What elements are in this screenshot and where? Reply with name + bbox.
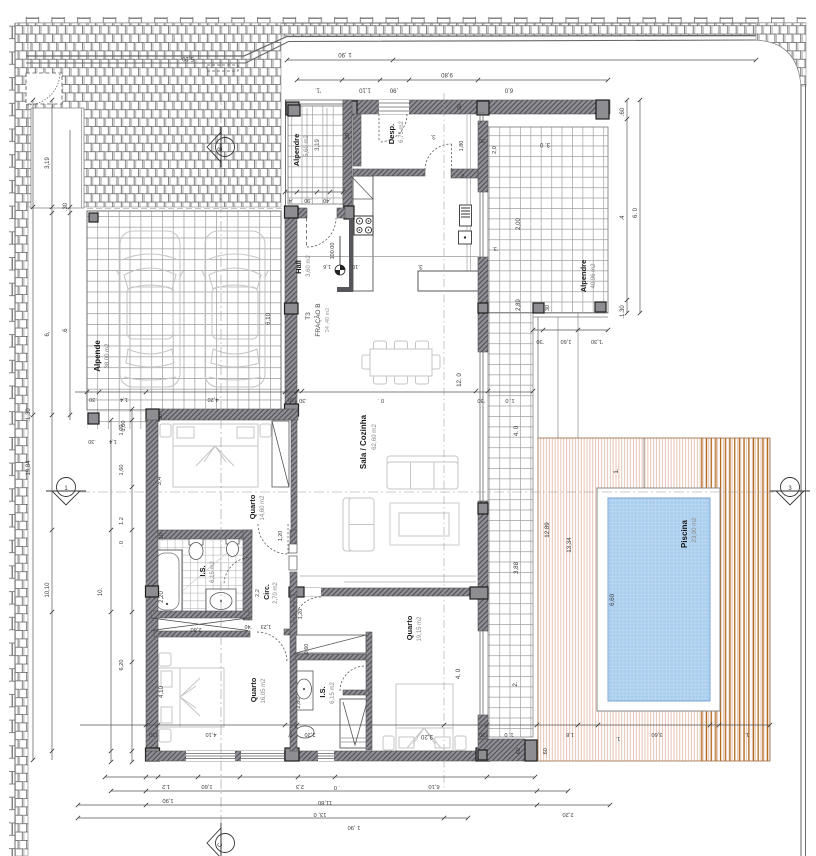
svg-text:.30: .30: [299, 397, 307, 403]
svg-text:.30: .30: [89, 396, 97, 402]
svg-text:Quarto: Quarto: [405, 615, 414, 640]
svg-text:Hall: Hall: [294, 260, 303, 274]
svg-text:4,20: 4,20: [208, 396, 219, 402]
svg-text:'3.: '3.: [492, 245, 498, 251]
svg-text:1,4: 1,4: [120, 396, 128, 402]
svg-text:5,10: 5,10: [182, 55, 194, 61]
svg-text:9,80: 9,80: [441, 71, 453, 77]
svg-text:6,: 6,: [45, 331, 51, 336]
svg-text:|30: |30: [288, 396, 296, 402]
svg-text:4,10: 4,10: [158, 685, 165, 698]
svg-text:1. 0: 1. 0: [505, 397, 514, 403]
svg-text:.10: .10: [352, 263, 360, 269]
svg-text:T3: T3: [305, 312, 312, 320]
svg-text:|30: |30: [479, 731, 487, 737]
svg-text:3. 0: 3. 0: [539, 141, 550, 147]
svg-text:0,60: 0,60: [304, 644, 310, 655]
svg-text:.10: .10: [159, 533, 165, 541]
svg-text:'30: '30: [477, 397, 484, 403]
svg-text:1,00: 1,00: [121, 421, 127, 432]
svg-text:1.: 1.: [744, 731, 749, 737]
svg-text:10,10: 10,10: [45, 582, 51, 598]
svg-text:2,70 m2: 2,70 m2: [273, 582, 279, 604]
svg-text:.1,30: .1,30: [26, 408, 32, 422]
svg-text:|30: |30: [149, 731, 157, 737]
svg-text:2,80: 2,80: [191, 626, 202, 632]
svg-text:62,60 m2: 62,60 m2: [371, 424, 378, 450]
svg-text:3,88: 3,88: [513, 561, 520, 574]
svg-text:0': 0': [288, 731, 292, 737]
svg-text:1.: 1.: [613, 468, 620, 473]
svg-text:1,60: 1,60: [201, 783, 212, 789]
svg-text:,40: ,40: [323, 197, 331, 203]
svg-text:2,89: 2,89: [516, 299, 522, 311]
svg-text:1. 0: 1. 0: [504, 731, 513, 737]
svg-text:16,05 m2: 16,05 m2: [261, 678, 267, 704]
svg-text:,90: ,90: [304, 197, 312, 203]
svg-text:.30: .30: [479, 137, 486, 143]
svg-text:.6: .6: [63, 328, 69, 334]
svg-text:10.: 10.: [98, 587, 104, 596]
svg-text:.30: .30: [63, 202, 69, 211]
svg-text:Alpendre: Alpendre: [579, 260, 588, 293]
svg-text:'1.: '1.: [315, 87, 321, 93]
svg-text:C: C: [218, 842, 224, 847]
svg-text:4. 0: 4. 0: [513, 425, 520, 436]
svg-text:I.S.: I.S.: [198, 565, 207, 576]
svg-text:1 ,90: 1 ,90: [338, 51, 352, 57]
svg-text:.1.30: .1.30: [620, 305, 626, 319]
svg-text:3.: 3.: [417, 263, 422, 270]
svg-text:Alpende: Alpende: [93, 340, 102, 372]
svg-text:30: 30: [457, 104, 463, 110]
svg-text:1,8: 1,8: [566, 731, 574, 737]
svg-text:1,6: 1,6: [323, 263, 331, 269]
svg-text:'30: '30: [536, 338, 543, 344]
svg-text:2.: 2.: [512, 681, 519, 686]
svg-text:I.S.: I.S.: [318, 686, 327, 697]
svg-text:3,20: 3,20: [420, 733, 433, 740]
svg-text:14,60 m2: 14,60 m2: [260, 495, 266, 521]
svg-text:Sala / Cozinha: Sala / Cozinha: [359, 414, 368, 469]
svg-text:1,20: 1,20: [298, 609, 304, 620]
svg-text:1,90: 1,90: [162, 797, 173, 803]
svg-text:,90: ,90: [389, 87, 398, 93]
svg-text:1.2: 1.2: [119, 517, 125, 525]
svg-text:6,15 m2: 6,15 m2: [210, 561, 216, 583]
svg-text:6,75 m2: 6,75 m2: [399, 121, 405, 143]
svg-text:6. 0: 6. 0: [633, 207, 639, 218]
svg-text:2,0: 2,0: [492, 146, 498, 154]
svg-text:30: 30: [545, 305, 551, 311]
svg-text:'40: '40: [244, 623, 251, 629]
svg-text:.60: .60: [516, 748, 522, 756]
svg-text:1.: 1.: [615, 735, 620, 741]
svg-text:1,10: 1,10: [359, 87, 371, 93]
svg-text:2,2: 2,2: [255, 589, 261, 597]
svg-text:1.2: 1.2: [162, 783, 170, 789]
svg-text:3,19: 3,19: [315, 139, 321, 151]
svg-text:38,00 m2: 38,00 m2: [105, 343, 111, 369]
svg-text:6,10: 6,10: [265, 312, 272, 325]
svg-text:1,4: 1,4: [109, 438, 117, 444]
svg-text:24 ,40 m2: 24 ,40 m2: [325, 308, 331, 332]
svg-text:B: B: [218, 147, 224, 151]
svg-text:. 0: . 0: [334, 784, 340, 790]
svg-text:3,19: 3,19: [45, 157, 51, 169]
svg-text:3.: 3.: [430, 133, 435, 139]
svg-text:.4: .4: [289, 197, 294, 203]
svg-text:Desp.: Desp.: [387, 124, 396, 144]
svg-text:100.00: 100.00: [330, 243, 336, 260]
svg-text:1,60: 1,60: [561, 338, 572, 344]
svg-text:.60: .60: [543, 748, 549, 756]
svg-text:'1,30: '1,30: [591, 338, 603, 344]
svg-text:2,00: 2,00: [516, 218, 522, 230]
svg-text:Piscina: Piscina: [680, 519, 689, 548]
svg-text:1,20: 1,20: [278, 531, 284, 542]
svg-text:13, 0: 13, 0: [314, 811, 327, 817]
svg-text:1,80: 1,80: [459, 141, 465, 152]
svg-text:40,96 m2: 40,96 m2: [591, 263, 597, 289]
svg-text:6,60: 6,60: [609, 593, 616, 606]
svg-text:12,89: 12,89: [544, 522, 551, 538]
svg-text:12. 0: 12. 0: [456, 373, 463, 387]
svg-text:.30: .30: [345, 133, 351, 141]
svg-text:2,20: 2,20: [305, 731, 316, 737]
svg-text:2,20: 2,20: [159, 591, 165, 603]
svg-text:1,60: 1,60: [119, 465, 125, 476]
svg-text:0: 0: [461, 172, 464, 178]
svg-text:2,20: 2,20: [562, 811, 573, 817]
svg-text:. 0: . 0: [119, 541, 125, 547]
svg-text:FRAÇÃO B: FRAÇÃO B: [313, 303, 322, 336]
svg-text:Circ.: Circ.: [264, 584, 271, 600]
svg-text:1 ,90: 1 ,90: [348, 824, 361, 830]
svg-text:1,23: 1,23: [261, 623, 272, 629]
svg-text:Quarto: Quarto: [249, 677, 258, 702]
svg-text:4,10: 4,10: [206, 731, 217, 737]
svg-text:Alpendre: Alpendre: [292, 134, 301, 167]
svg-text:.60: .60: [620, 107, 626, 116]
svg-text:Quarto: Quarto: [248, 494, 257, 519]
svg-text:6,10: 6,10: [428, 783, 439, 789]
svg-text:4. 0: 4. 0: [455, 668, 462, 679]
svg-text:6,15 m2: 6,15 m2: [330, 682, 336, 704]
svg-text:23,90 m2: 23,90 m2: [692, 517, 698, 543]
svg-text:6,20: 6,20: [119, 660, 125, 671]
svg-text:6,0: 6,0: [504, 87, 513, 93]
svg-text:.4: .4: [620, 215, 626, 221]
svg-text:19,84: 19,84: [26, 460, 32, 476]
svg-text:11,80: 11,80: [318, 799, 332, 805]
svg-text:2,3: 2,3: [296, 783, 304, 789]
svg-text:.30: .30: [88, 438, 96, 444]
svg-text:3,60: 3,60: [652, 731, 663, 737]
svg-text:13,34: 13,34: [566, 537, 573, 553]
svg-text:0 .: 0 .: [377, 397, 384, 403]
svg-text:3,60 m2: 3,60 m2: [306, 255, 312, 277]
svg-text:19,15 m2: 19,15 m2: [417, 616, 423, 642]
